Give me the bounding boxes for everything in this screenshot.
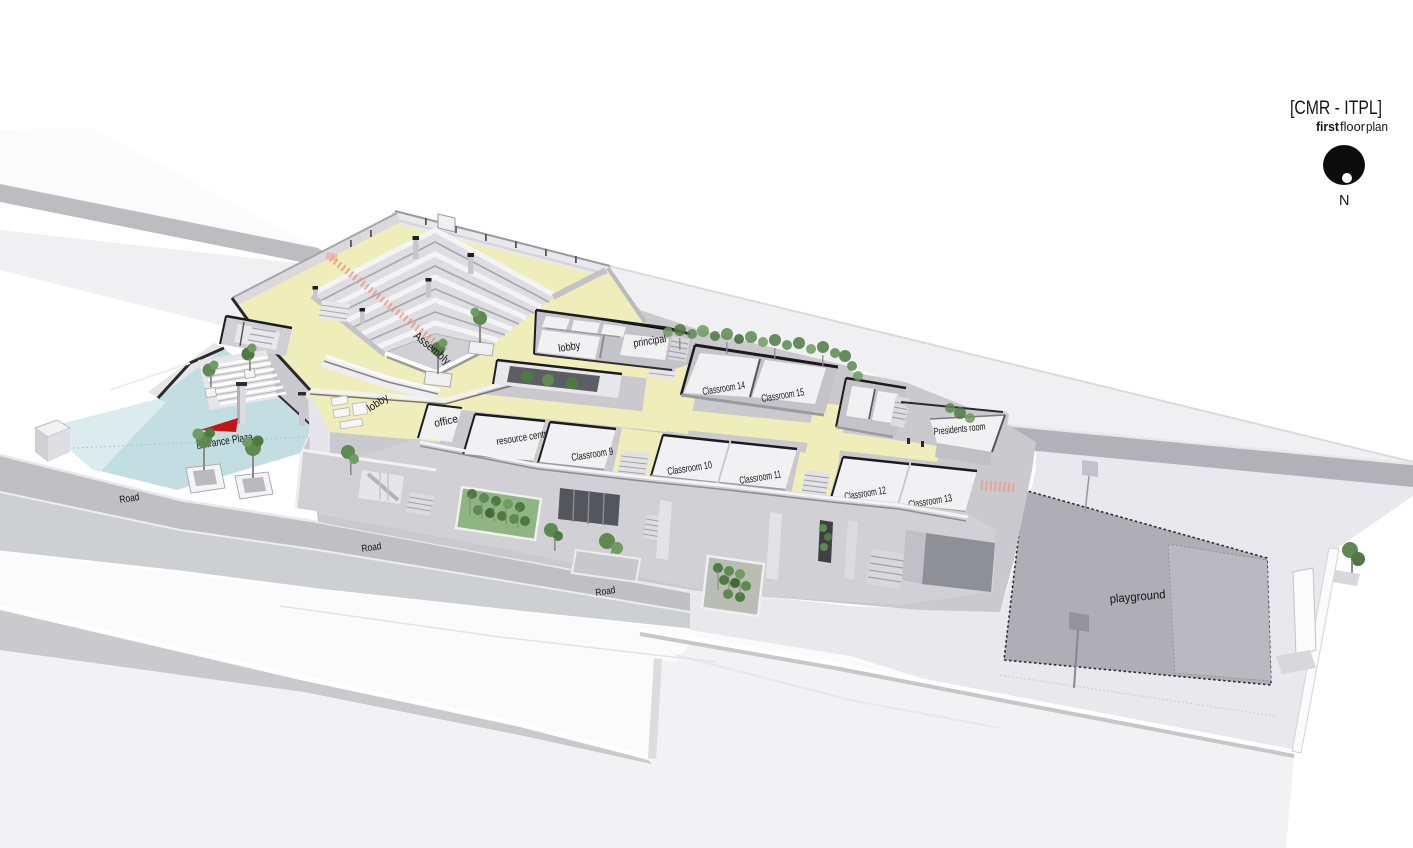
svg-text:plan: plan: [1366, 120, 1388, 134]
svg-text:N: N: [1339, 193, 1349, 209]
svg-text:floor: floor: [1340, 120, 1365, 134]
svg-text:first: first: [1316, 120, 1340, 134]
svg-text:[CMR - ITPL]: [CMR - ITPL]: [1290, 98, 1382, 119]
